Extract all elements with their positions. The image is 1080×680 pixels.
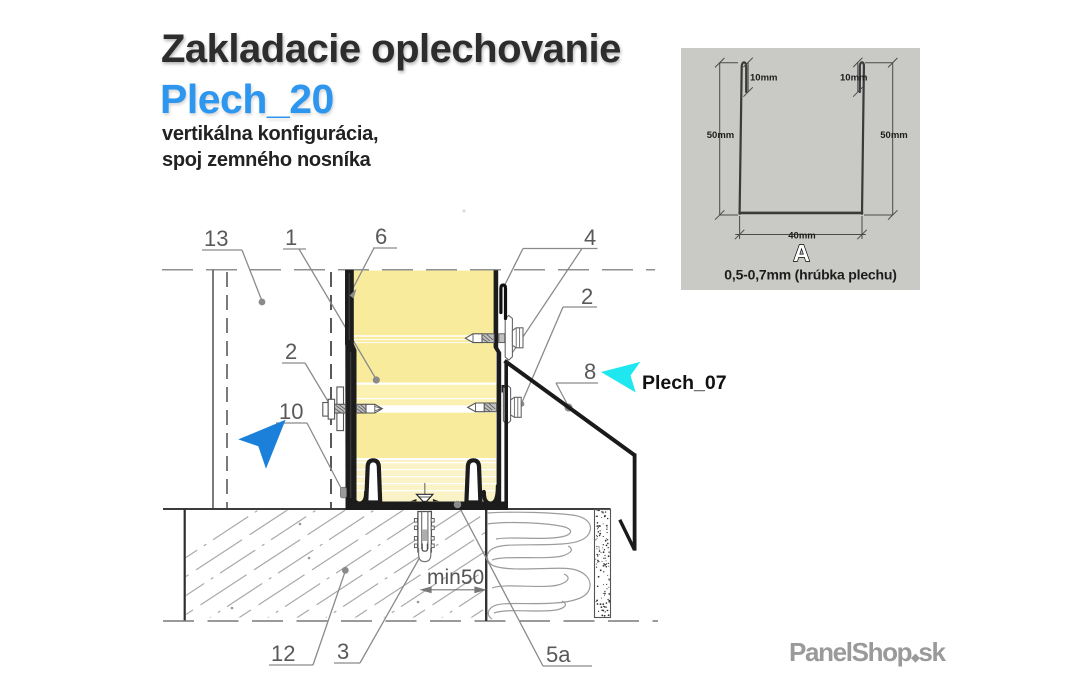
svg-text:2: 2 [581, 284, 593, 309]
svg-text:1: 1 [285, 225, 297, 250]
svg-text:5a: 5a [546, 642, 571, 667]
svg-text:8: 8 [584, 359, 596, 384]
svg-text:Plech_07: Plech_07 [642, 372, 727, 394]
svg-text:12: 12 [271, 641, 295, 666]
svg-text:6: 6 [375, 224, 387, 249]
svg-text:10: 10 [279, 399, 303, 424]
svg-text:4: 4 [584, 225, 596, 250]
svg-text:2: 2 [285, 339, 297, 364]
svg-text:min50: min50 [427, 566, 484, 589]
svg-text:3: 3 [337, 639, 349, 664]
svg-text:13: 13 [204, 226, 228, 251]
